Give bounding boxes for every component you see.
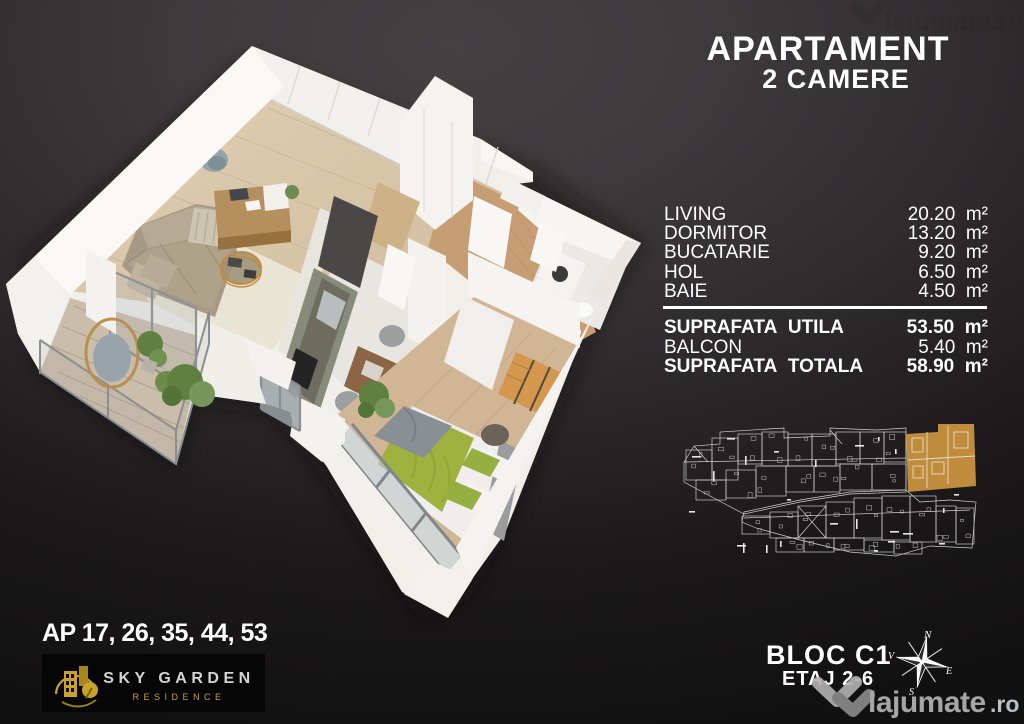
svg-text:V: V [888, 651, 896, 662]
svg-text:N: N [923, 629, 932, 641]
svg-text:lajumate: lajumate [868, 686, 986, 719]
svg-text:.ro: .ro [990, 691, 1019, 717]
svg-text:SKY GARDEN: SKY GARDEN [103, 670, 254, 687]
svg-text:RESIDENCE: RESIDENCE [132, 692, 225, 702]
svg-text:lajumate.ro: lajumate.ro [885, 6, 1024, 36]
